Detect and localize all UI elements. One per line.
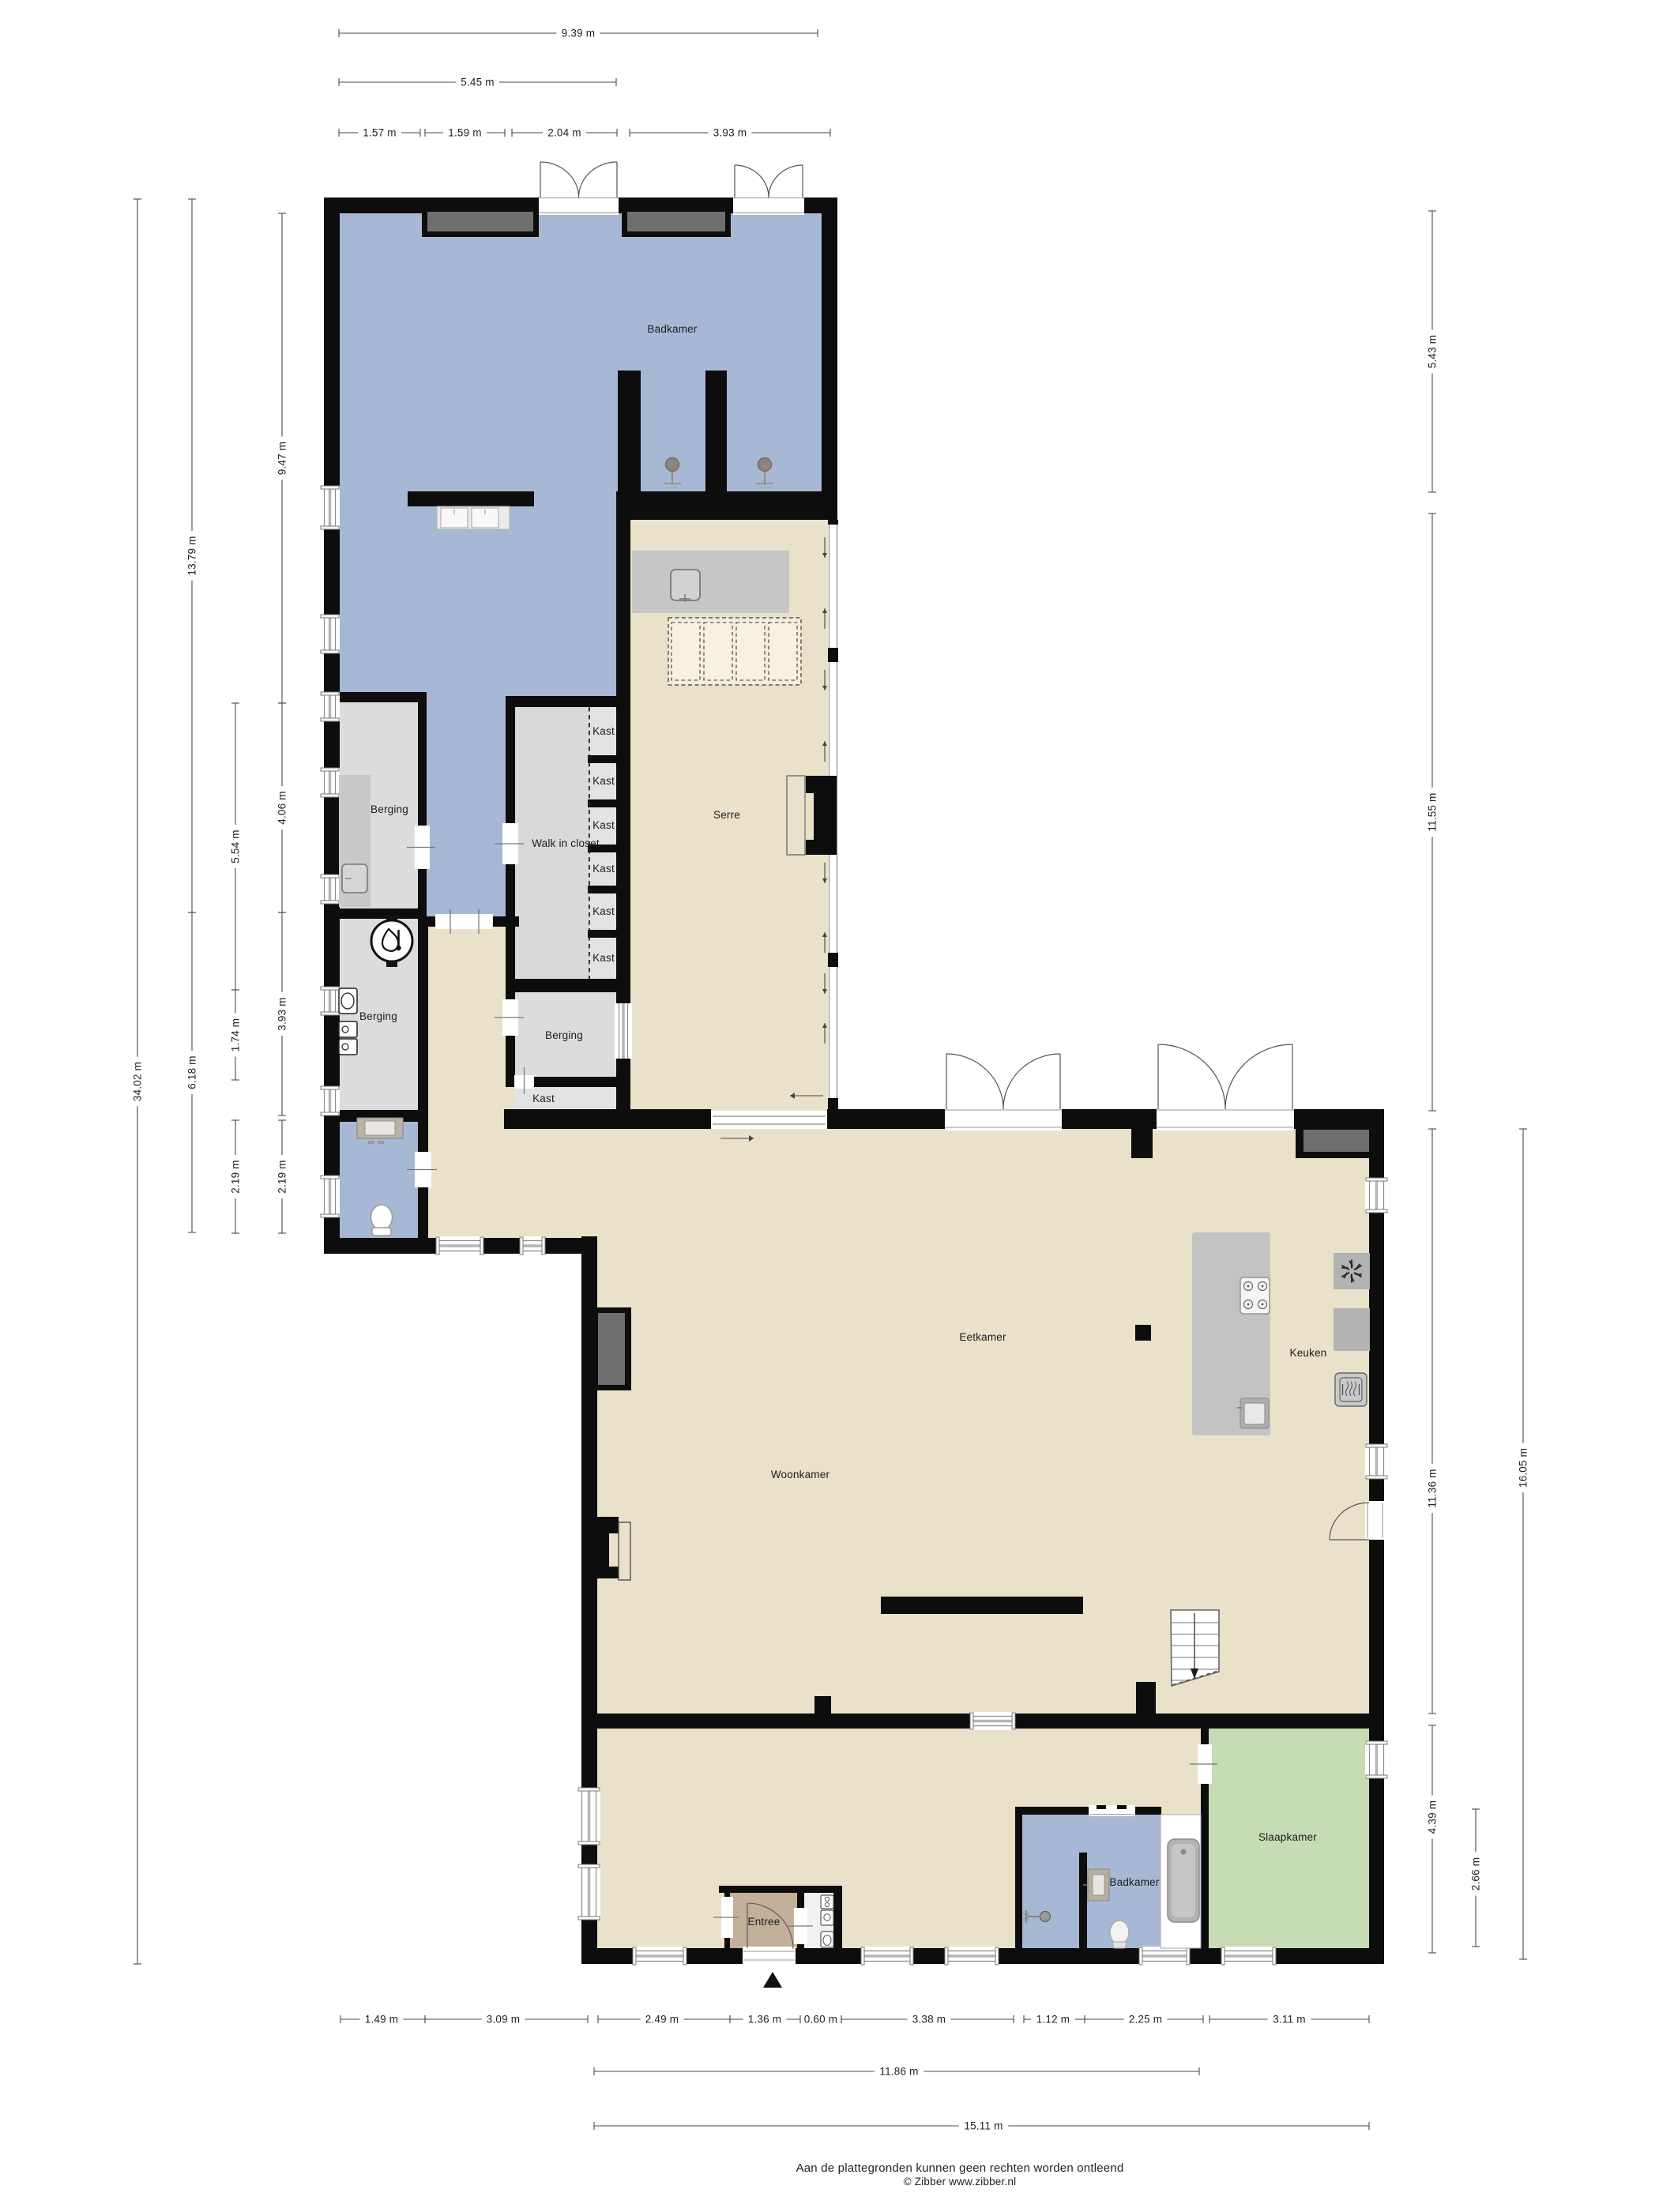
svg-text:9.39 m: 9.39 m	[562, 28, 595, 39]
svg-text:3.11 m: 3.11 m	[1273, 2014, 1305, 2026]
svg-text:3.38 m: 3.38 m	[912, 2014, 946, 2026]
svg-text:2.19 m: 2.19 m	[276, 1160, 288, 1193]
svg-text:11.86 m: 11.86 m	[879, 2066, 918, 2078]
svg-text:2.25 m: 2.25 m	[1129, 2014, 1162, 2026]
svg-text:1.57 m: 1.57 m	[363, 127, 396, 139]
svg-text:5.43 m: 5.43 m	[1427, 335, 1439, 368]
svg-text:Aan de plattegronden kunnen ge: Aan de plattegronden kunnen geen rechten…	[796, 2161, 1124, 2175]
svg-text:Walk in closet: Walk in closet	[532, 837, 600, 849]
svg-text:Kast: Kast	[592, 725, 615, 737]
svg-text:Slaapkamer: Slaapkamer	[1258, 1831, 1317, 1843]
svg-text:Berging: Berging	[371, 803, 408, 815]
svg-text:Kast: Kast	[592, 863, 615, 875]
svg-text:4.06 m: 4.06 m	[276, 791, 288, 824]
svg-text:11.55 m: 11.55 m	[1427, 792, 1439, 831]
svg-text:34.02 m: 34.02 m	[132, 1062, 144, 1101]
svg-text:16.05 m: 16.05 m	[1518, 1448, 1529, 1488]
svg-text:1.49 m: 1.49 m	[365, 2014, 398, 2026]
svg-text:Badkamer: Badkamer	[647, 323, 697, 335]
svg-text:Kast: Kast	[592, 905, 615, 917]
svg-text:Kast: Kast	[592, 819, 615, 831]
svg-text:2.49 m: 2.49 m	[645, 2014, 679, 2026]
svg-text:5.54 m: 5.54 m	[230, 829, 242, 863]
svg-text:3.09 m: 3.09 m	[487, 2014, 520, 2026]
svg-text:2.04 m: 2.04 m	[547, 127, 581, 139]
svg-text:Woonkamer: Woonkamer	[771, 1469, 830, 1480]
svg-text:Berging: Berging	[545, 1029, 583, 1041]
svg-text:3.93 m: 3.93 m	[713, 127, 747, 139]
svg-text:2.19 m: 2.19 m	[230, 1160, 242, 1193]
svg-text:4.39 m: 4.39 m	[1427, 1800, 1439, 1834]
svg-text:1.74 m: 1.74 m	[230, 1018, 242, 1051]
svg-text:15.11 m: 15.11 m	[964, 2120, 1003, 2132]
svg-text:5.45 m: 5.45 m	[461, 77, 494, 88]
svg-text:9.47 m: 9.47 m	[276, 442, 288, 475]
svg-text:Serre: Serre	[713, 809, 740, 821]
svg-text:Kast: Kast	[532, 1093, 555, 1104]
svg-text:Badkamer: Badkamer	[1109, 1876, 1159, 1888]
svg-text:© Zibber www.zibber.nl: © Zibber www.zibber.nl	[904, 2176, 1017, 2188]
svg-text:3.93 m: 3.93 m	[276, 997, 288, 1030]
svg-text:13.79 m: 13.79 m	[186, 536, 198, 575]
svg-text:Berging: Berging	[359, 1010, 397, 1022]
svg-text:0.60 m: 0.60 m	[804, 2014, 837, 2026]
svg-text:1.59 m: 1.59 m	[448, 127, 481, 139]
svg-text:Kast: Kast	[592, 775, 615, 787]
svg-text:Entree: Entree	[748, 1916, 781, 1928]
svg-text:Kast: Kast	[592, 952, 615, 964]
svg-text:Eetkamer: Eetkamer	[959, 1331, 1006, 1343]
svg-text:6.18 m: 6.18 m	[186, 1055, 198, 1089]
svg-text:Keuken: Keuken	[1290, 1347, 1327, 1359]
svg-text:11.36 m: 11.36 m	[1427, 1469, 1439, 1507]
svg-text:2.66 m: 2.66 m	[1470, 1857, 1482, 1890]
svg-text:1.36 m: 1.36 m	[748, 2014, 781, 2026]
svg-text:1.12 m: 1.12 m	[1036, 2014, 1070, 2026]
